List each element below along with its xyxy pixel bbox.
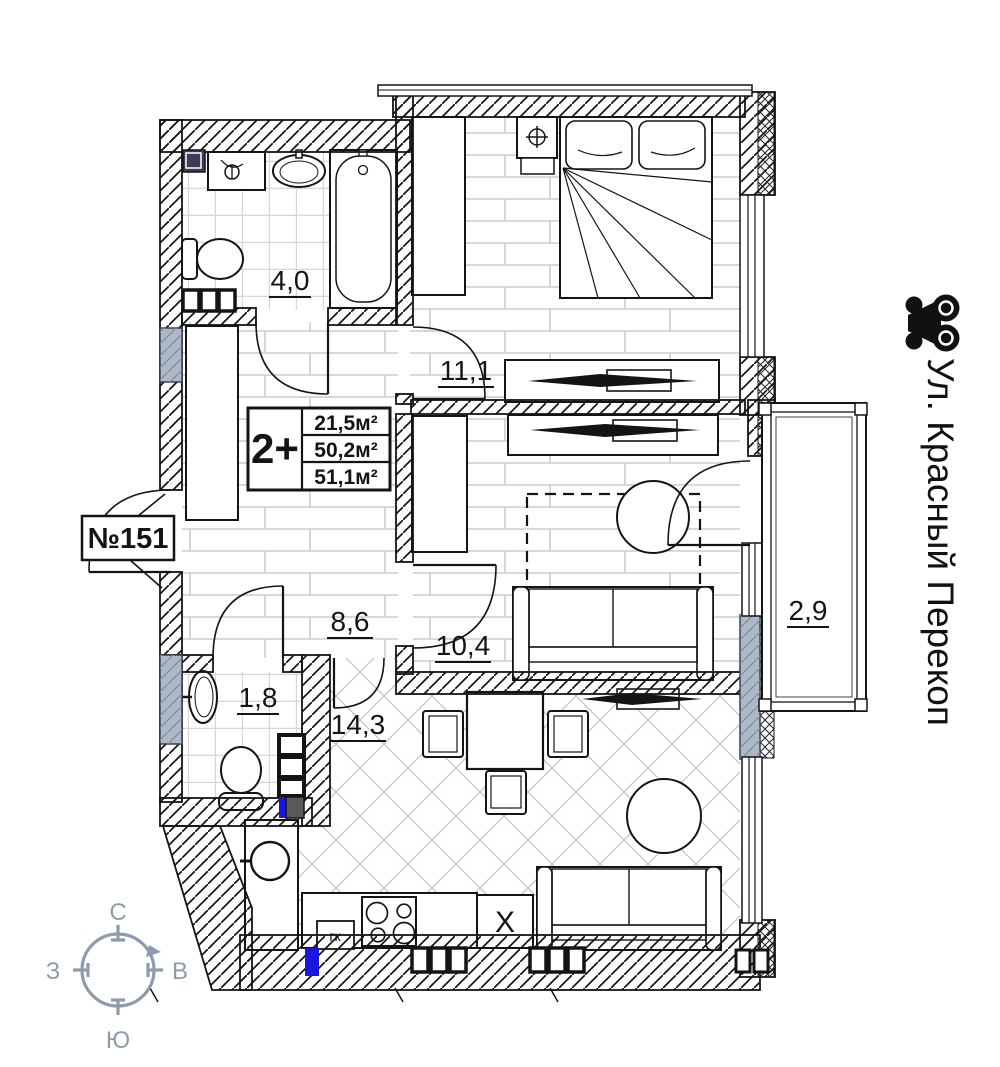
compass-tick-south (111, 1000, 125, 1015)
compass-circle (82, 934, 154, 1006)
compass-label-south: Ю (106, 1027, 130, 1054)
living-round-table (617, 481, 689, 553)
wall-hall-living-upper (396, 414, 413, 562)
compass-arrowhead (146, 945, 161, 957)
compass-label-east: В (172, 958, 188, 985)
compass-label-north: С (109, 899, 126, 926)
vent-shaft-navy (183, 150, 205, 172)
wall-wc-right (302, 655, 330, 826)
compass-tick-east (148, 963, 163, 977)
living-wardrobe (412, 416, 467, 552)
hall-area-text: 8,6 (331, 606, 370, 637)
window-bedroom-right (740, 195, 764, 357)
street-label-group: Ул. Красный Перекоп (906, 295, 962, 726)
wall-bathroom-bottom-right (328, 308, 397, 325)
kitchen-round-table (627, 779, 701, 853)
dining-table (467, 692, 543, 769)
wall-living-kitchen (396, 672, 745, 694)
bedroom-area-text: 11,1 (440, 355, 492, 386)
balcony-frame (759, 403, 867, 711)
bedroom-wardrobe (412, 117, 465, 295)
boiler-label: гк (329, 928, 341, 944)
apartment-number-text: №151 (88, 523, 169, 555)
wc-area-text: 1,8 (239, 682, 278, 713)
window-living-right (742, 543, 762, 616)
living-area-value: 21,5м² (314, 412, 377, 435)
label-hall-area: 8,6 (327, 606, 373, 638)
label-bedroom-area: 11,1 (438, 355, 494, 387)
label-wc-area: 1,8 (237, 682, 279, 714)
bedroom-dresser-tv (505, 360, 719, 402)
hall-wardrobe (186, 326, 238, 520)
bathtub (330, 150, 397, 308)
kitchen-area-text: 14,3 (331, 709, 386, 740)
washing-machine (208, 152, 265, 190)
bottom-wall-blue-segment (305, 948, 319, 976)
floorplan-page: 4,0 11,1 8,6 10,4 14,3 1,8 2,9 гк X (0, 0, 1000, 1067)
living-dresser-tv (508, 415, 718, 455)
balcony-area-text: 2,9 (789, 595, 828, 626)
apartment-area-value: 50,2м² (314, 439, 377, 462)
wc-gray-square (286, 797, 304, 818)
bed (560, 117, 712, 298)
bathroom-area-text: 4,0 (271, 265, 310, 296)
floorplan-drawing: 4,0 11,1 8,6 10,4 14,3 1,8 2,9 гк X (0, 0, 1000, 1067)
wc-shaft (279, 735, 304, 818)
street-name-text: Ул. Красный Перекоп (920, 358, 961, 726)
binoculars-icon (906, 295, 960, 352)
label-bathroom-area: 4,0 (269, 265, 311, 297)
compass: С Ю З В (46, 899, 188, 1054)
wall-hall-living-lower (396, 646, 413, 674)
living-sofa (513, 587, 713, 680)
compass-tick-west (73, 963, 88, 977)
room-count-label: 2+ (251, 425, 299, 472)
total-area-value: 51,1м² (314, 466, 377, 489)
bathroom-toilet (182, 239, 243, 279)
label-balcony-area: 2,9 (787, 595, 829, 627)
label-kitchen-area: 14,3 (330, 709, 386, 741)
wall-top-bathroom (160, 120, 410, 152)
label-living-area: 10,4 (435, 630, 491, 662)
wall-wc-top-right (283, 655, 302, 672)
nightstand (517, 117, 557, 174)
living-area-text: 10,4 (436, 630, 491, 661)
bathroom-radiator (183, 290, 235, 311)
wc-blue-strip (279, 797, 286, 818)
compass-label-west: З (46, 958, 61, 985)
wall-bedroom-living (411, 400, 745, 414)
wall-left-upper (160, 120, 182, 490)
window-top-bedroom (378, 85, 752, 96)
compass-tick-north (111, 925, 125, 940)
sink-label: X (495, 906, 515, 939)
wall-bathroom-bedroom (396, 92, 413, 325)
info-box: 2+ 21,5м² 50,2м² 51,1м² (248, 408, 390, 490)
window-kitchen-right (742, 757, 762, 923)
